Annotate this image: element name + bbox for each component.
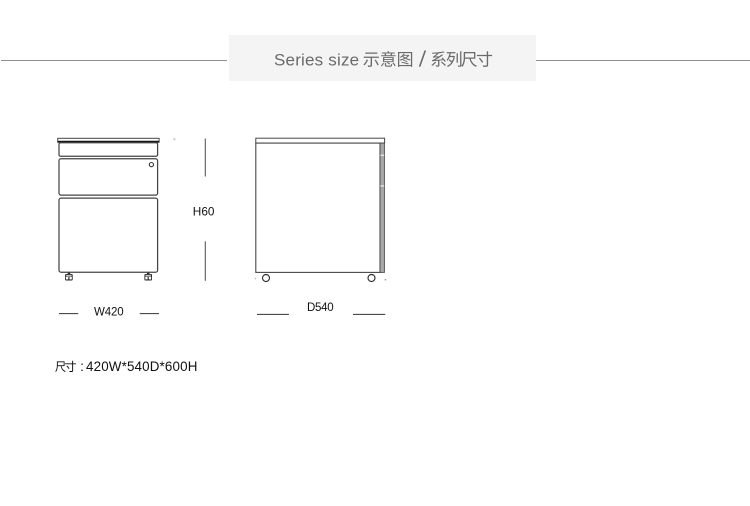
svg-text:420W*540D*600H: 420W*540D*600H bbox=[86, 359, 198, 374]
svg-text::: : bbox=[80, 359, 84, 374]
svg-text:W420: W420 bbox=[94, 307, 123, 319]
svg-text:D540: D540 bbox=[307, 302, 333, 314]
svg-text:H60: H60 bbox=[193, 205, 215, 219]
